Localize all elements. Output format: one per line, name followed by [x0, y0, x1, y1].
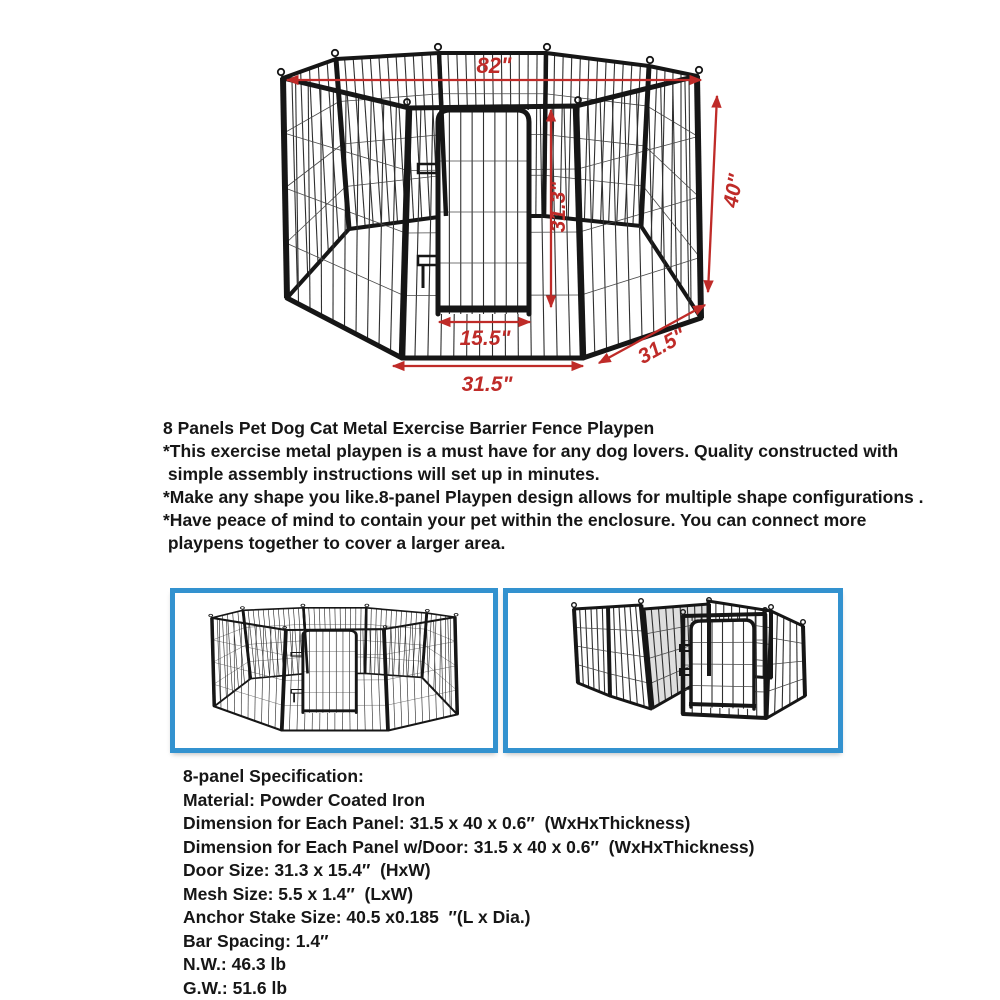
specification-list: 8-panel Specification: Material: Powder …	[183, 765, 863, 1000]
spec-item-mesh-size: Mesh Size: 5.5 x 1.4″ (LxW)	[183, 883, 863, 907]
spec-item-material: Material: Powder Coated Iron	[183, 789, 863, 813]
description-line: *Make any shape you like.8-panel Playpen…	[163, 486, 883, 509]
spec-item-net-weight: N.W.: 46.3 lb	[183, 953, 863, 977]
spec-item-gross-weight: G.W.: 51.6 lb	[183, 977, 863, 1000]
door-bottom-rail	[689, 704, 756, 706]
dim-label-front-panel-width: 31.5"	[462, 373, 514, 396]
description-line: *Have peace of mind to contain your pet …	[163, 509, 883, 532]
spec-item-anchor-stake: Anchor Stake Size: 40.5 x0.185 ″(L x Dia…	[183, 906, 863, 930]
spec-item-panel-dimension: Dimension for Each Panel: 31.5 x 40 x 0.…	[183, 812, 863, 836]
dim-label-panel-height: 40"	[719, 171, 748, 210]
description-line: simple assembly instructions will set up…	[163, 463, 883, 486]
dim-label-door-height: 31.3"	[547, 181, 570, 233]
gallery-thumbnail-octagon	[170, 588, 498, 753]
product-spec-sheet: { "diagram": { "name": "8-panel playpen …	[0, 0, 1000, 1000]
spec-item-door-panel-dimension: Dimension for Each Panel w/Door: 31.5 x …	[183, 836, 863, 860]
octagon-config-image	[175, 593, 493, 748]
product-title: 8 Panels Pet Dog Cat Metal Exercise Barr…	[163, 417, 883, 440]
dim-label-top-width: 82"	[477, 53, 512, 78]
gallery-thumbnail-square	[503, 588, 843, 753]
spec-title: 8-panel Specification:	[183, 765, 863, 789]
spec-item-door-size: Door Size: 31.3 x 15.4″ (HxW)	[183, 859, 863, 883]
product-description: 8 Panels Pet Dog Cat Metal Exercise Barr…	[163, 417, 883, 555]
description-line: *This exercise metal playpen is a must h…	[163, 440, 883, 463]
description-line: playpens together to cover a larger area…	[163, 532, 883, 555]
playpen-drawing	[278, 44, 702, 358]
square-config-image	[508, 593, 838, 748]
main-dimension-diagram: 82" 40" 31.3" 15.5" 31.5" 31.5"	[253, 14, 758, 416]
spec-item-bar-spacing: Bar Spacing: 1.4″	[183, 930, 863, 954]
door-mesh	[691, 620, 754, 709]
dim-label-door-width: 15.5"	[460, 327, 512, 350]
